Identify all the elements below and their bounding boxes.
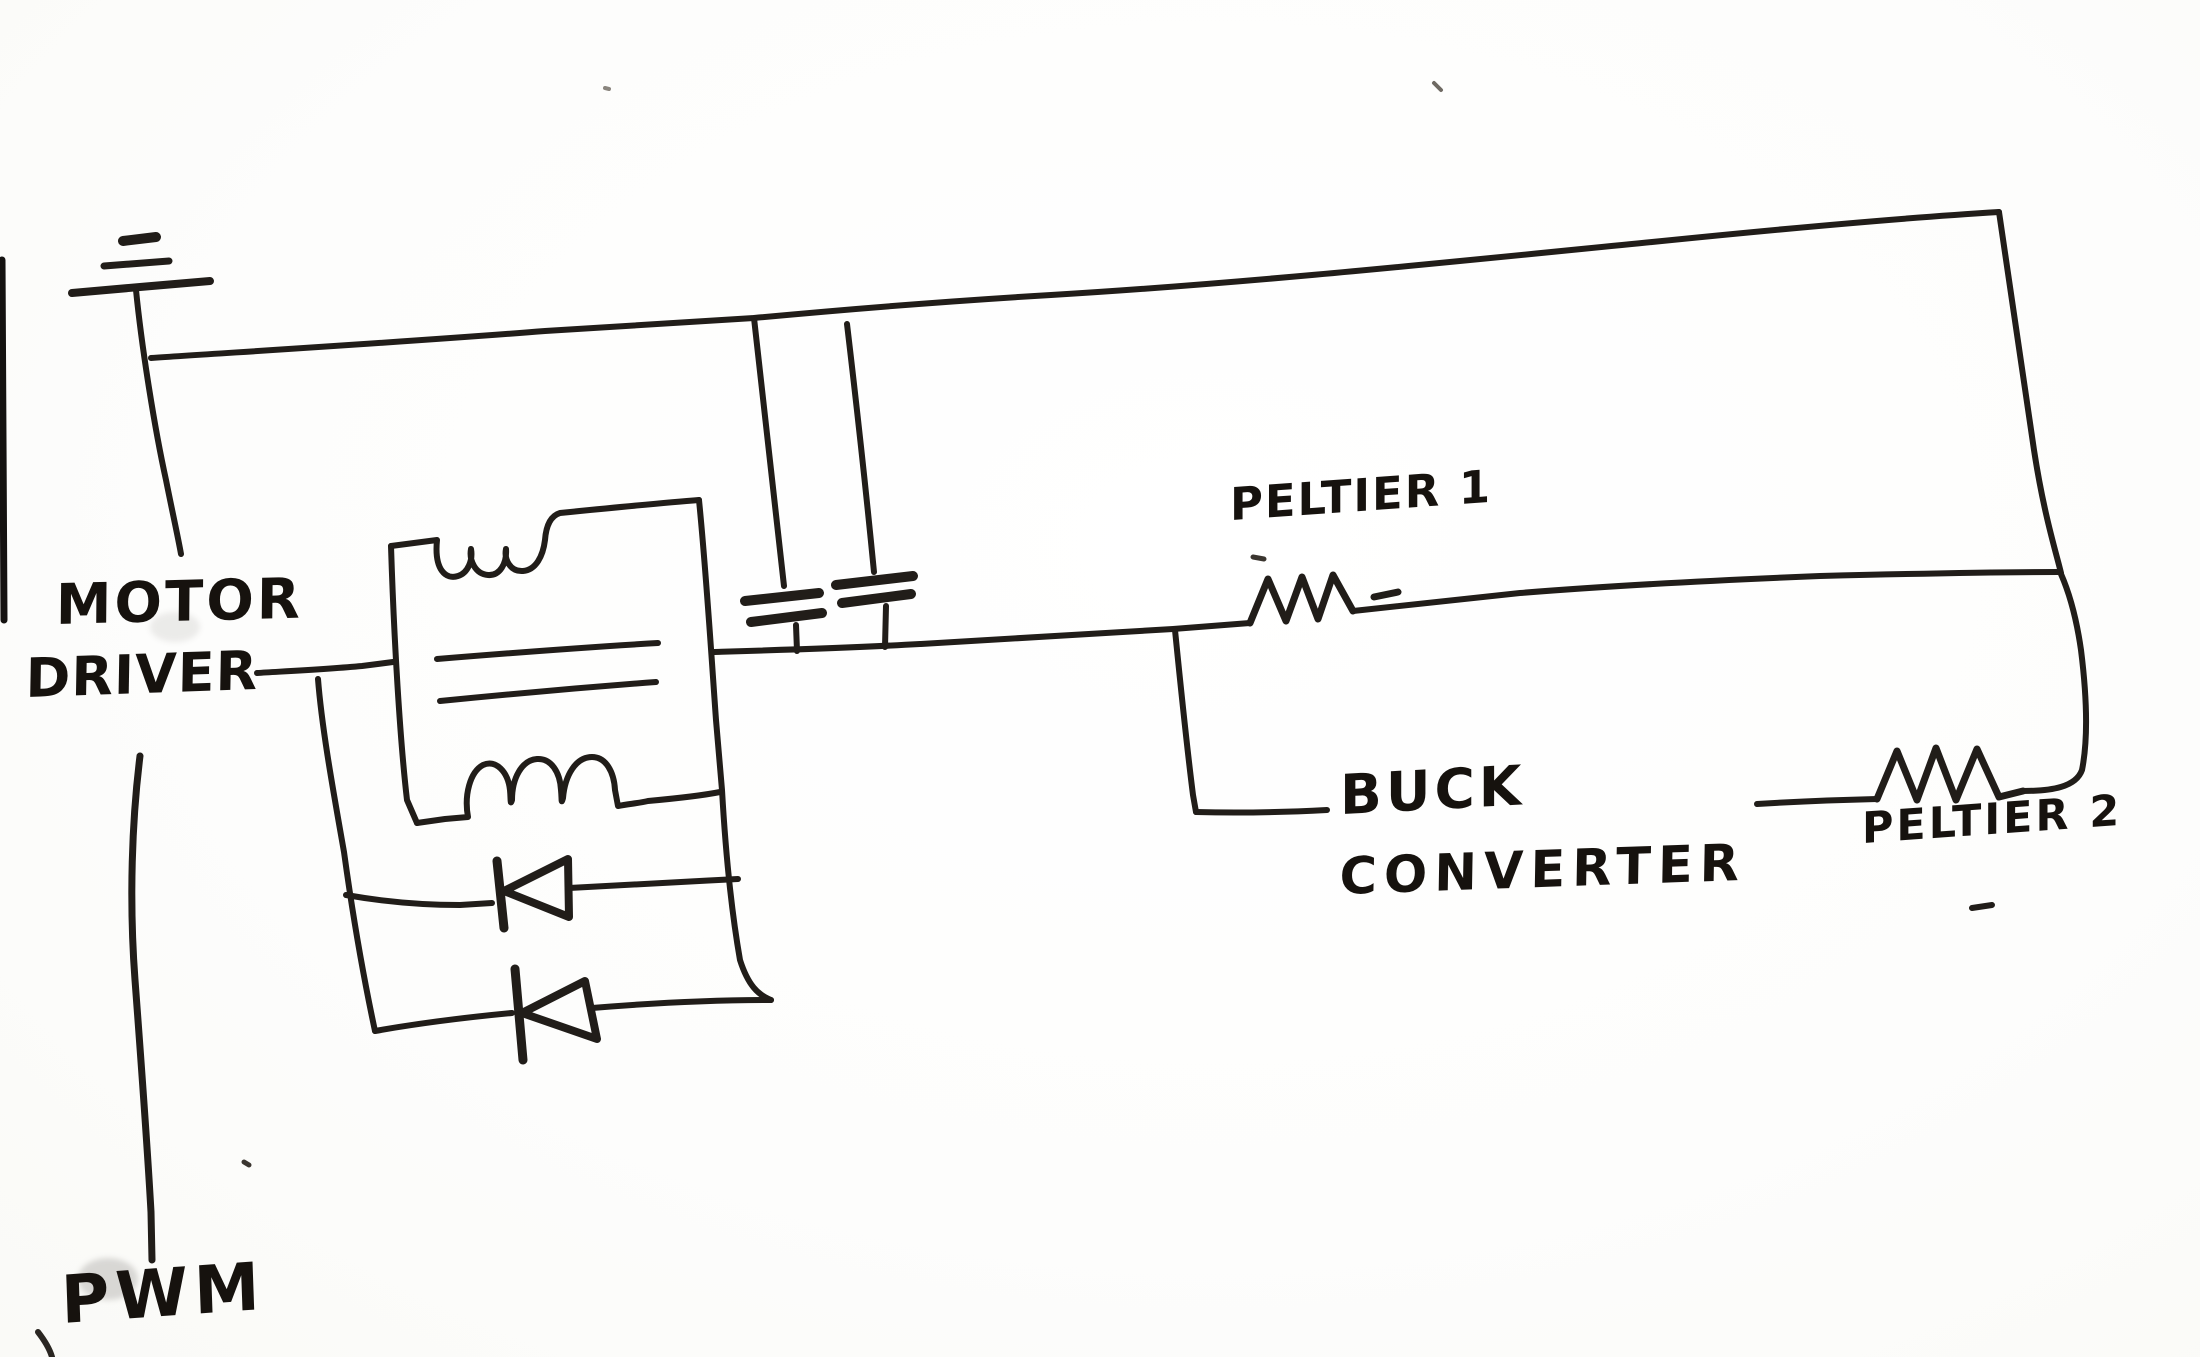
diode-loop-left-wire [318,679,375,1031]
ground-symbol [72,237,210,554]
motor-driver-output-wire [257,662,393,673]
buck-converter-label-line2: CONVERTER [1339,838,1746,903]
filter-capacitor-2 [836,324,913,647]
top-supply-wire [151,212,2061,573]
circuit-drawing [0,0,2200,1357]
pwm-label: PWM [60,1254,267,1334]
scanned-schematic-sheet: MOTOR DRIVER PWM PELTIER 1 BUCK CONVERTE… [0,0,2200,1357]
filter-capacitor-1 [745,318,822,651]
motor-driver-label-line2: DRIVER [25,644,259,706]
buck-converter-label-line1: BUCK [1340,758,1525,823]
peltier-2-element [1757,574,2086,804]
flyback-diode-1 [346,859,738,928]
scan-edge-artifact [2,260,4,620]
motor-winding-block [391,500,771,1000]
buck-converter-branch-wire [1175,630,1327,813]
flyback-diode-2 [375,969,771,1060]
pwm-signal-wire [132,756,152,1260]
pencil-speck [38,83,1992,1357]
peltier-1-element [1250,572,2058,623]
motor-driver-label-line1: MOTOR [56,572,304,635]
